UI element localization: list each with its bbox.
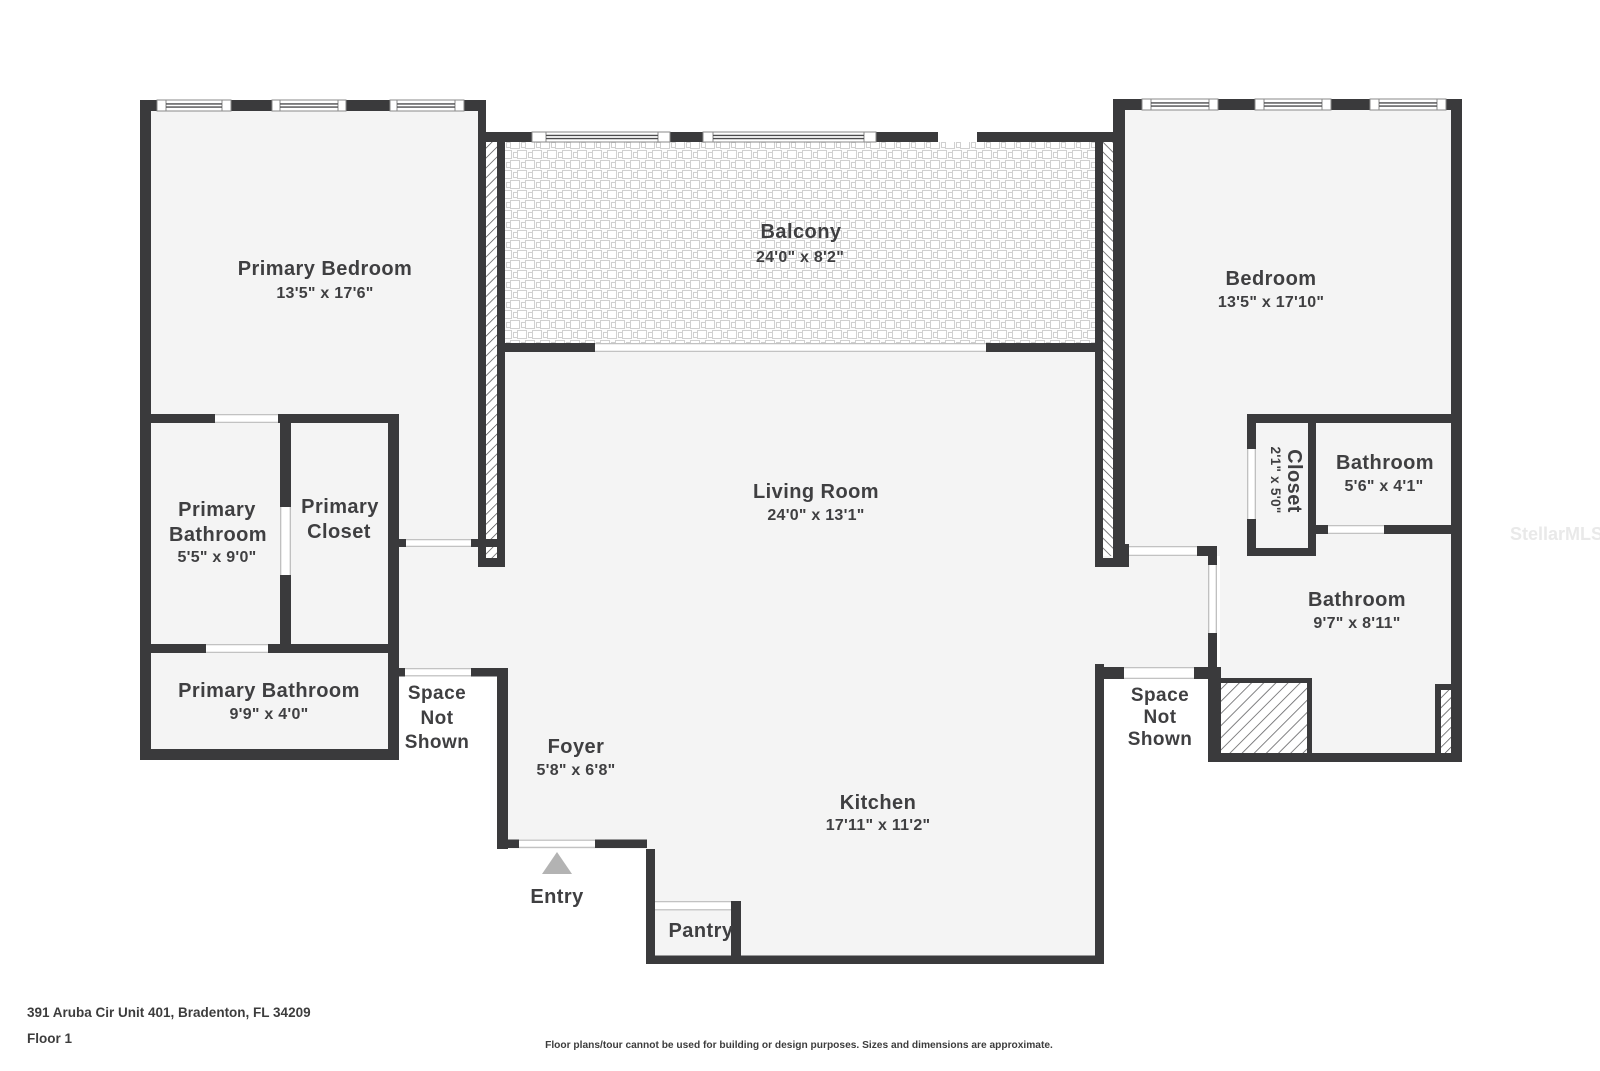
svg-text:24'0" x 13'1": 24'0" x 13'1": [767, 507, 864, 524]
svg-text:Primary Bathroom: Primary Bathroom: [178, 680, 360, 702]
svg-text:Pantry: Pantry: [669, 920, 734, 942]
svg-text:24'0" x 8'2": 24'0" x 8'2": [756, 249, 844, 266]
svg-text:Foyer: Foyer: [548, 736, 605, 758]
svg-text:5'8" x 6'8": 5'8" x 6'8": [537, 762, 616, 779]
svg-text:Floor 1: Floor 1: [27, 1031, 72, 1046]
svg-text:391 Aruba Cir Unit 401, Braden: 391 Aruba Cir Unit 401, Bradenton, FL 34…: [27, 1005, 311, 1020]
svg-text:Bathroom: Bathroom: [1336, 452, 1434, 474]
svg-text:Bedroom: Bedroom: [1226, 268, 1317, 290]
svg-text:Primary: Primary: [178, 499, 256, 521]
svg-text:Kitchen: Kitchen: [840, 792, 917, 814]
svg-text:9'9" x 4'0": 9'9" x 4'0": [230, 706, 309, 723]
svg-text:13'5" x 17'10": 13'5" x 17'10": [1218, 294, 1324, 311]
svg-text:Not: Not: [420, 708, 453, 729]
svg-text:Primary Bedroom: Primary Bedroom: [238, 258, 413, 280]
svg-text:5'5" x 9'0": 5'5" x 9'0": [178, 549, 257, 566]
svg-text:Shown: Shown: [405, 732, 470, 753]
svg-text:Bathroom: Bathroom: [169, 524, 267, 546]
svg-text:StellarMLS: StellarMLS: [1510, 524, 1600, 544]
svg-text:Closet: Closet: [1283, 449, 1305, 513]
svg-text:2'1" x 5'0": 2'1" x 5'0": [1268, 446, 1283, 513]
svg-text:5'6" x 4'1": 5'6" x 4'1": [1345, 478, 1424, 495]
svg-text:13'5" x 17'6": 13'5" x 17'6": [276, 285, 373, 302]
svg-text:Closet: Closet: [307, 521, 371, 543]
svg-text:17'11" x 11'2": 17'11" x 11'2": [826, 817, 931, 834]
svg-text:Living Room: Living Room: [753, 481, 879, 503]
svg-text:Shown: Shown: [1128, 729, 1193, 750]
svg-text:Floor plans/tour cannot be use: Floor plans/tour cannot be used for buil…: [545, 1040, 1053, 1051]
svg-text:Space: Space: [1131, 685, 1189, 706]
svg-text:Bathroom: Bathroom: [1308, 589, 1406, 611]
svg-text:Entry: Entry: [530, 886, 584, 908]
svg-text:Primary: Primary: [301, 496, 379, 518]
svg-text:9'7" x 8'11": 9'7" x 8'11": [1313, 615, 1400, 632]
svg-text:Space: Space: [408, 683, 466, 704]
svg-text:Not: Not: [1143, 707, 1176, 728]
svg-text:Balcony: Balcony: [761, 221, 842, 243]
